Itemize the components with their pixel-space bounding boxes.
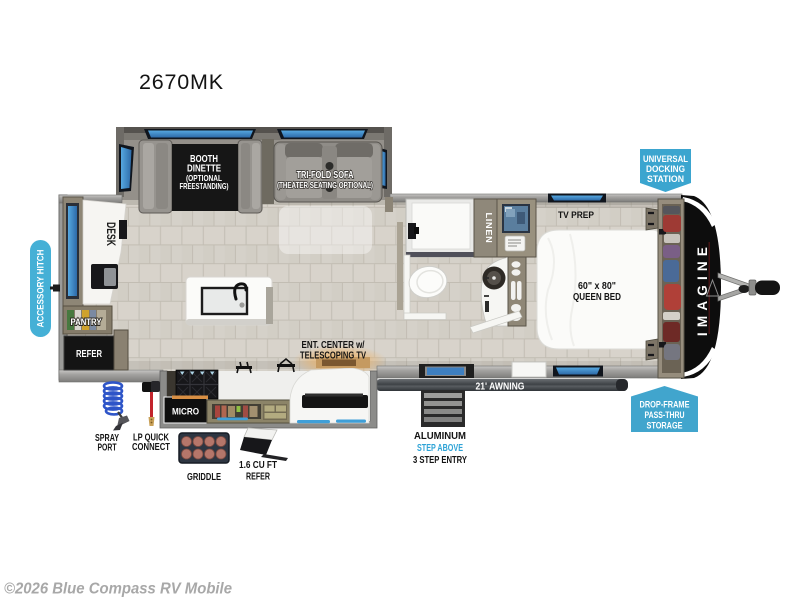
svg-text:STORAGE: STORAGE — [647, 421, 683, 431]
svg-text:UNIVERSAL: UNIVERSAL — [643, 154, 689, 164]
svg-text:REFER: REFER — [76, 348, 102, 360]
svg-text:DESK: DESK — [104, 222, 116, 247]
svg-text:GRIDDLE: GRIDDLE — [187, 472, 221, 483]
svg-text:ENT. CENTER w/: ENT. CENTER w/ — [302, 340, 365, 351]
svg-text:STEP ABOVE: STEP ABOVE — [417, 442, 463, 454]
svg-text:REFER: REFER — [246, 472, 271, 483]
svg-text:DOCKING: DOCKING — [646, 164, 685, 174]
svg-text:1.6 CU FT: 1.6 CU FT — [239, 460, 277, 471]
svg-text:MICRO: MICRO — [172, 407, 199, 418]
svg-text:21' AWNING: 21' AWNING — [476, 382, 525, 393]
svg-text:PASS-THRU: PASS-THRU — [645, 410, 685, 420]
svg-text:PORT: PORT — [98, 443, 117, 454]
svg-text:ACCESSORY HITCH: ACCESSORY HITCH — [36, 250, 46, 328]
svg-text:(THEATER SEATING OPTIONAL): (THEATER SEATING OPTIONAL) — [277, 181, 373, 190]
svg-text:CONNECT: CONNECT — [132, 442, 170, 453]
svg-text:DROP-FRAME: DROP-FRAME — [640, 400, 690, 410]
svg-text:TV PREP: TV PREP — [558, 210, 594, 220]
svg-text:3 STEP ENTRY: 3 STEP ENTRY — [413, 454, 467, 466]
svg-text:LINEN: LINEN — [484, 213, 494, 244]
svg-text:60" x 80": 60" x 80" — [578, 281, 616, 292]
svg-text:FREESTANDING): FREESTANDING) — [180, 181, 229, 191]
svg-text:QUEEN BED: QUEEN BED — [573, 292, 621, 303]
svg-text:2670MK: 2670MK — [139, 70, 224, 94]
svg-text:TRI-FOLD SOFA: TRI-FOLD SOFA — [297, 170, 354, 181]
svg-text:STATION: STATION — [647, 174, 684, 184]
svg-text:TELESCOPING TV: TELESCOPING TV — [300, 351, 366, 362]
svg-text:©2026 Blue Compass RV Mobile: ©2026 Blue Compass RV Mobile — [4, 581, 232, 598]
svg-text:IMAGINE: IMAGINE — [695, 242, 710, 336]
svg-text:ALUMINUM: ALUMINUM — [414, 430, 466, 442]
svg-text:PANTRY: PANTRY — [71, 317, 103, 328]
